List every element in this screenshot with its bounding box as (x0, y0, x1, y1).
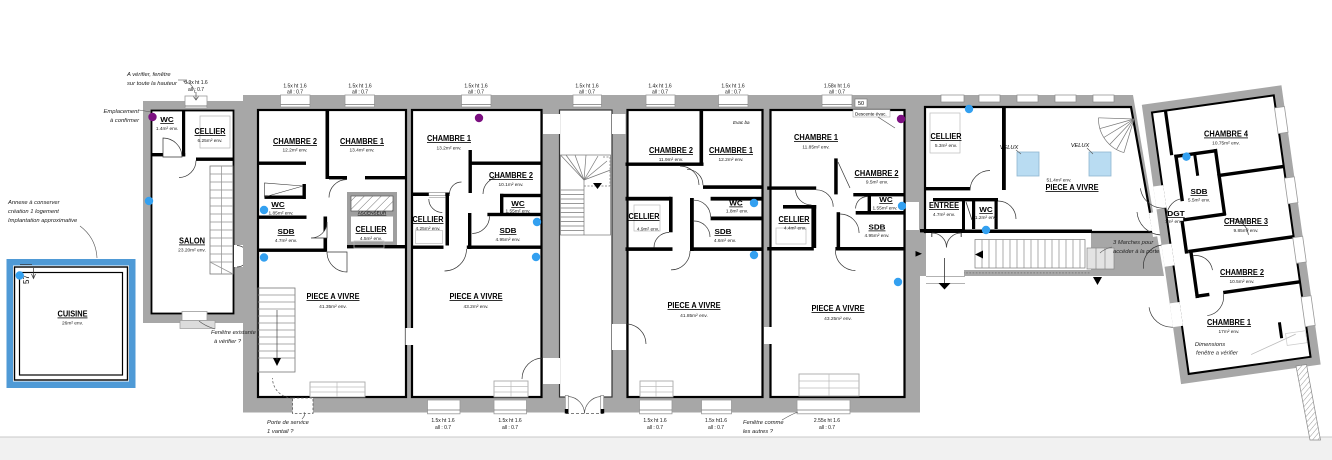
svg-text:4.7m² env.: 4.7m² env. (933, 212, 955, 218)
svg-text:43.25m² env.: 43.25m² env. (824, 316, 852, 322)
svg-text:A vérifier, fenêtre: A vérifier, fenêtre (126, 72, 171, 78)
svg-text:CELLIER: CELLIER (629, 212, 660, 221)
svg-text:PIECE A VIVRE: PIECE A VIVRE (668, 301, 722, 310)
svg-text:all : 0.7: all : 0.7 (829, 90, 845, 96)
svg-text:SDB: SDB (869, 223, 887, 232)
svg-text:1.5x ht 1.6: 1.5x ht 1.6 (643, 418, 667, 424)
svg-text:10.1m² env.: 10.1m² env. (499, 182, 524, 188)
svg-text:CHAMBRE 2: CHAMBRE 2 (489, 171, 534, 180)
svg-text:4.95m² env.: 4.95m² env. (496, 237, 521, 243)
svg-text:DGT: DGT (1167, 209, 1185, 218)
svg-text:41.35m² env.: 41.35m² env. (319, 304, 347, 310)
svg-text:SDB: SDB (278, 227, 296, 236)
svg-text:CHAMBRE 1: CHAMBRE 1 (340, 137, 385, 146)
svg-text:1.5x ht 1.6: 1.5x ht 1.6 (498, 418, 522, 424)
svg-text:CHAMBRE 2: CHAMBRE 2 (273, 137, 318, 146)
svg-text:CHAMBRE 3: CHAMBRE 3 (1224, 217, 1269, 226)
svg-text:12.2m² env.: 12.2m² env. (283, 148, 308, 154)
svg-text:PIECE A VIVRE: PIECE A VIVRE (450, 292, 504, 301)
svg-text:CUISINE: CUISINE (58, 310, 89, 319)
svg-text:4.5m² env.: 4.5m² env. (360, 236, 382, 242)
svg-text:CELLIER: CELLIER (931, 132, 962, 141)
svg-text:all : 0.7: all : 0.7 (188, 87, 204, 93)
svg-text:all : 0.7: all : 0.7 (352, 90, 368, 96)
svg-text:Dimensions: Dimensions (1195, 342, 1225, 348)
svg-text:Fenêtre comme: Fenêtre comme (743, 420, 784, 426)
svg-text:6.25m² env.: 6.25m² env. (198, 138, 223, 144)
svg-text:4.6m² env.: 4.6m² env. (714, 238, 736, 244)
svg-text:Evac ba: Evac ba (733, 120, 750, 125)
svg-text:Emplacement: Emplacement (104, 109, 140, 115)
svg-text:SDB: SDB (1191, 187, 1209, 196)
svg-text:2.55x ht 1.6: 2.55x ht 1.6 (814, 418, 840, 424)
svg-text:SDB: SDB (715, 227, 733, 236)
svg-text:CHAMBRE 2: CHAMBRE 2 (649, 146, 694, 155)
svg-text:13.4m² env.: 13.4m² env. (350, 148, 375, 154)
svg-text:4.95m² env.: 4.95m² env. (865, 233, 890, 239)
svg-text:CELLIER: CELLIER (356, 225, 387, 234)
svg-text:11.9m² env.: 11.9m² env. (659, 157, 684, 163)
svg-text:1.2m² env.: 1.2m² env. (975, 215, 997, 221)
svg-text:SALON: SALON (179, 237, 205, 246)
svg-text:1.55m² env.: 1.55m² env. (873, 206, 898, 212)
svg-text:23.20m² env.: 23.20m² env. (178, 248, 206, 254)
svg-text:VELUX: VELUX (1000, 145, 1019, 151)
svg-text:12.2m² env.: 12.2m² env. (719, 157, 744, 163)
svg-text:9.5m² env.: 9.5m² env. (866, 179, 888, 185)
svg-text:CHAMBRE 2: CHAMBRE 2 (855, 169, 900, 178)
svg-text:à vérifier ?: à vérifier ? (214, 339, 242, 345)
svg-text:all : 0.7: all : 0.7 (502, 425, 518, 431)
svg-text:CELLIER: CELLIER (779, 215, 810, 224)
svg-text:PIECE A VIVRE: PIECE A VIVRE (1046, 183, 1100, 192)
svg-text:1.5x ht 1.6: 1.5x ht 1.6 (431, 418, 455, 424)
svg-text:26m² env.: 26m² env. (62, 321, 83, 327)
svg-text:all : 0.7: all : 0.7 (435, 425, 451, 431)
svg-text:0.9x ht 1.6: 0.9x ht 1.6 (184, 80, 208, 86)
svg-text:CHAMBRE 1: CHAMBRE 1 (1207, 318, 1252, 327)
svg-text:1.85m² env.: 1.85m² env. (269, 211, 294, 217)
svg-text:13.2m² env.: 13.2m² env. (437, 146, 462, 152)
svg-text:1.8m² env.: 1.8m² env. (726, 209, 748, 215)
svg-text:Annexe à conserver: Annexe à conserver (7, 200, 61, 206)
svg-text:ENTREE: ENTREE (929, 201, 960, 210)
svg-text:WC: WC (979, 205, 993, 214)
svg-text:41.85m² env.: 41.85m² env. (680, 313, 708, 319)
svg-text:SDB: SDB (500, 226, 518, 235)
svg-text:sur toute la hauteur: sur toute la hauteur (127, 81, 178, 87)
svg-text:Implantation approximative: Implantation approximative (8, 218, 78, 224)
svg-text:VELUX: VELUX (1071, 143, 1090, 149)
svg-text:les autres ?: les autres ? (743, 429, 774, 435)
svg-text:CHAMBRE 1: CHAMBRE 1 (794, 133, 839, 142)
svg-text:1.5x ht1.6: 1.5x ht1.6 (705, 418, 727, 424)
svg-text:3 Marches pour: 3 Marches pour (1113, 240, 1154, 246)
svg-text:CELLIER: CELLIER (413, 215, 444, 224)
svg-text:Descente évac.: Descente évac. (855, 112, 887, 117)
svg-text:all : 0.7: all : 0.7 (652, 90, 668, 96)
svg-text:4.9m² env.: 4.9m² env. (637, 227, 659, 233)
svg-text:CHAMBRE 2: CHAMBRE 2 (1220, 268, 1265, 277)
svg-text:all : 0.7: all : 0.7 (647, 425, 663, 431)
svg-text:all : 0.7: all : 0.7 (819, 425, 835, 431)
svg-text:all : 0.7: all : 0.7 (468, 90, 484, 96)
svg-text:WC: WC (160, 115, 174, 124)
svg-text:5.3m² env.: 5.3m² env. (935, 143, 957, 149)
svg-text:WC: WC (879, 195, 893, 204)
svg-text:accéder à la porte: accéder à la porte (1113, 249, 1160, 255)
svg-text:WC: WC (511, 199, 525, 208)
svg-text:all : 0.7: all : 0.7 (287, 90, 303, 96)
svg-text:4.7m² env.: 4.7m² env. (275, 238, 297, 244)
svg-text:17m² env.: 17m² env. (1219, 329, 1240, 335)
svg-text:CHAMBRE 4: CHAMBRE 4 (1204, 130, 1249, 139)
svg-text:11.85m² env.: 11.85m² env. (802, 145, 829, 151)
svg-text:WC: WC (729, 199, 743, 208)
svg-text:1.4m² env.: 1.4m² env. (156, 126, 178, 132)
svg-text:10.75m² env.: 10.75m² env. (1212, 141, 1240, 147)
svg-text:7m² env.: 7m² env. (1165, 219, 1183, 225)
svg-text:CELLIER: CELLIER (195, 127, 226, 136)
svg-text:1 vantail ?: 1 vantail ? (267, 429, 294, 435)
svg-text:CHAMBRE 1: CHAMBRE 1 (427, 134, 472, 143)
svg-text:4.25m² env.: 4.25m² env. (416, 226, 441, 232)
svg-text:5.5m² env.: 5.5m² env. (1188, 198, 1210, 204)
svg-text:création 1 logement: création 1 logement (8, 209, 59, 215)
svg-text:51.4m² env.: 51.4m² env. (1047, 178, 1072, 184)
svg-text:WC: WC (271, 200, 285, 209)
svg-text:all : 0.7: all : 0.7 (725, 90, 741, 96)
svg-text:Porte de service: Porte de service (267, 420, 310, 426)
svg-text:PIECE A VIVRE: PIECE A VIVRE (812, 304, 866, 313)
svg-text:all : 0.7: all : 0.7 (579, 90, 595, 96)
svg-text:9.85m² env.: 9.85m² env. (1234, 228, 1259, 234)
svg-text:10.5m² env.: 10.5m² env. (1230, 279, 1255, 285)
svg-text:fenêtre a vérifier: fenêtre a vérifier (1196, 351, 1239, 357)
svg-text:ASCENSEUR: ASCENSEUR (358, 211, 387, 216)
svg-text:1.55m² env.: 1.55m² env. (506, 209, 531, 215)
svg-text:50: 50 (858, 101, 864, 107)
svg-text:Fenêtre existante: Fenêtre existante (211, 330, 257, 336)
svg-text:43.2m² env.: 43.2m² env. (464, 304, 489, 310)
svg-text:CHAMBRE 1: CHAMBRE 1 (709, 146, 754, 155)
svg-text:à confirmer: à confirmer (110, 118, 140, 124)
svg-text:all : 0.7: all : 0.7 (708, 425, 724, 431)
svg-text:4.4m² env.: 4.4m² env. (784, 226, 806, 232)
svg-text:PIECE A VIVRE: PIECE A VIVRE (307, 292, 361, 301)
